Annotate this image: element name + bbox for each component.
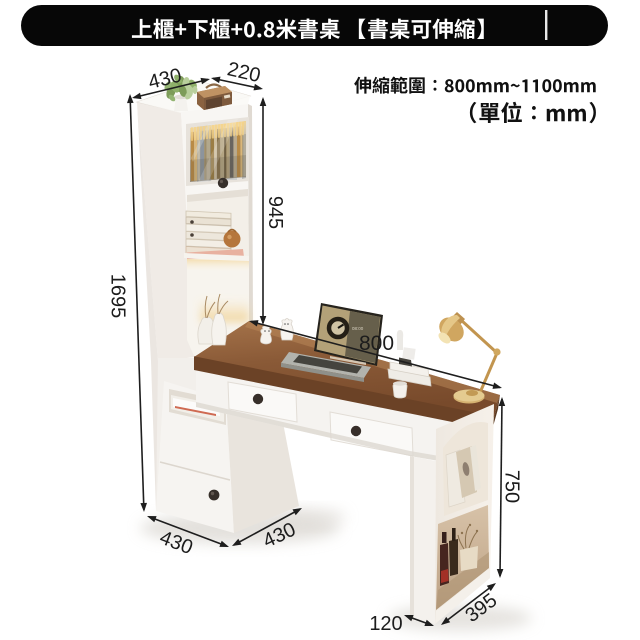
svg-text:1695: 1695 [106,274,128,319]
svg-text:750: 750 [501,470,523,503]
svg-text:800: 800 [359,332,394,355]
svg-text:945: 945 [264,196,286,229]
svg-text:08:00: 08:00 [352,326,364,331]
svg-text:120: 120 [369,613,402,635]
